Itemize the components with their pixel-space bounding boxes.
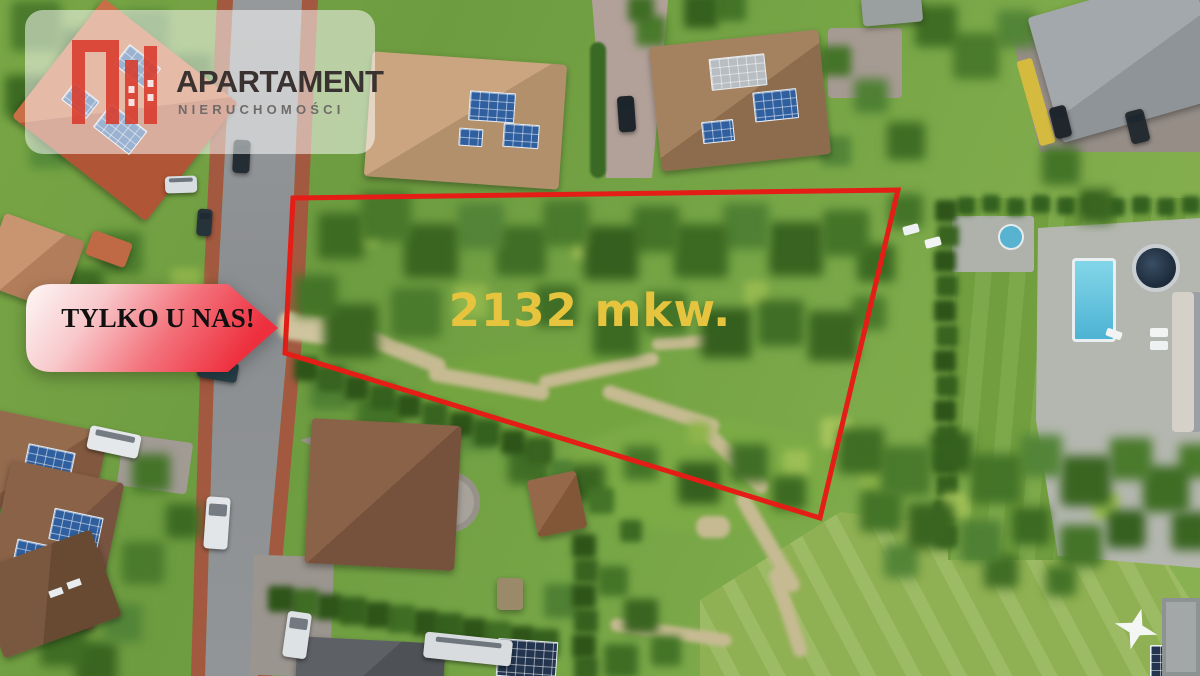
brand-name: APARTAMENT [176, 64, 383, 100]
plot-outline-polygon [285, 190, 898, 518]
banner-label: TYLKO U NAS! [58, 303, 258, 334]
brand-logo-icon [72, 40, 158, 126]
brand-logo-panel: APARTAMENT NIERUCHOMOŚCI [25, 10, 375, 154]
brand-tagline: NIERUCHOMOŚCI [178, 102, 345, 117]
area-label: 2132 mkw. [420, 284, 760, 337]
listing-promo-image: 2132 mkw. TYLKO U NAS! [0, 0, 1200, 676]
